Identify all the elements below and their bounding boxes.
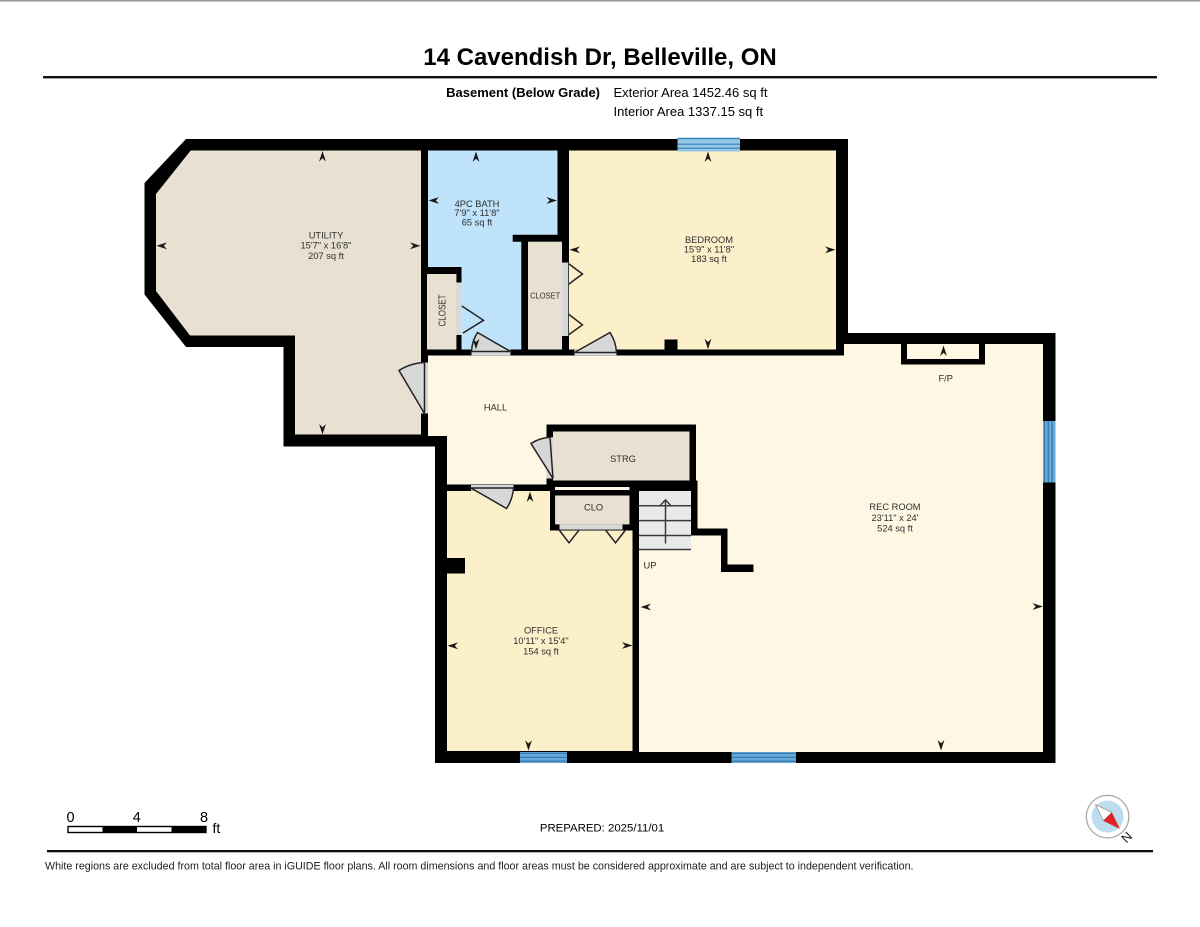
svg-text:CLO: CLO	[584, 503, 603, 513]
svg-text:STRG: STRG	[610, 454, 636, 464]
svg-text:14 Cavendish Dr, Belleville, O: 14 Cavendish Dr, Belleville, ON	[423, 44, 776, 71]
svg-text:White regions are excluded fro: White regions are excluded from total fl…	[45, 861, 914, 873]
svg-text:UTILITY: UTILITY	[309, 230, 344, 240]
svg-text:ft: ft	[213, 820, 221, 836]
svg-text:CLOSET: CLOSET	[437, 295, 448, 327]
svg-text:207 sq ft: 207 sq ft	[308, 251, 344, 261]
svg-text:PREPARED: 2025/11/01: PREPARED: 2025/11/01	[540, 823, 664, 835]
svg-text:10'11" x 15'4": 10'11" x 15'4"	[513, 636, 568, 646]
svg-text:BEDROOM: BEDROOM	[685, 235, 733, 245]
svg-text:0: 0	[66, 810, 74, 826]
svg-text:REC ROOM: REC ROOM	[869, 502, 920, 512]
svg-text:183 sq ft: 183 sq ft	[691, 254, 727, 264]
svg-text:65 sq ft: 65 sq ft	[462, 217, 493, 227]
svg-text:8: 8	[200, 810, 208, 826]
svg-text:15'7" x 16'8": 15'7" x 16'8"	[301, 241, 352, 251]
svg-text:23'11" x 24': 23'11" x 24'	[872, 513, 919, 523]
svg-text:Exterior Area 1452.46 sq ft: Exterior Area 1452.46 sq ft	[614, 85, 768, 100]
svg-text:Interior Area 1337.15 sq ft: Interior Area 1337.15 sq ft	[614, 104, 764, 119]
svg-text:15'9" x 11'8": 15'9" x 11'8"	[684, 244, 734, 254]
svg-text:154 sq ft: 154 sq ft	[523, 647, 559, 657]
svg-text:HALL: HALL	[484, 403, 507, 413]
svg-text:UP: UP	[644, 561, 657, 571]
svg-text:OFFICE: OFFICE	[524, 626, 558, 636]
svg-text:524 sq ft: 524 sq ft	[877, 524, 913, 534]
svg-text:Basement (Below Grade): Basement (Below Grade)	[446, 85, 600, 100]
svg-text:CLOSET: CLOSET	[530, 290, 561, 300]
svg-text:4: 4	[133, 810, 141, 826]
svg-text:F/P: F/P	[938, 373, 952, 383]
